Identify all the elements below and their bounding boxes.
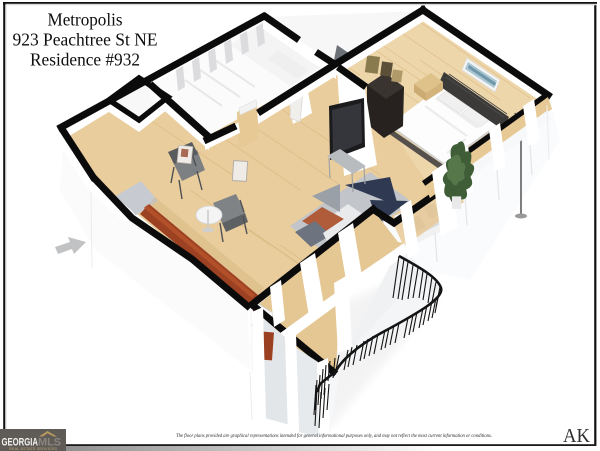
svg-text:923 Peachtree St NE: 923 Peachtree St NE bbox=[13, 30, 158, 50]
svg-text:Residence #932: Residence #932 bbox=[30, 50, 140, 70]
svg-text:REAL ESTATE SERVICES: REAL ESTATE SERVICES bbox=[9, 447, 57, 451]
svg-text:AK: AK bbox=[563, 426, 590, 447]
svg-text:Metropolis: Metropolis bbox=[48, 10, 123, 30]
svg-text:The floor plans provided are g: The floor plans provided are graphical r… bbox=[176, 432, 492, 439]
